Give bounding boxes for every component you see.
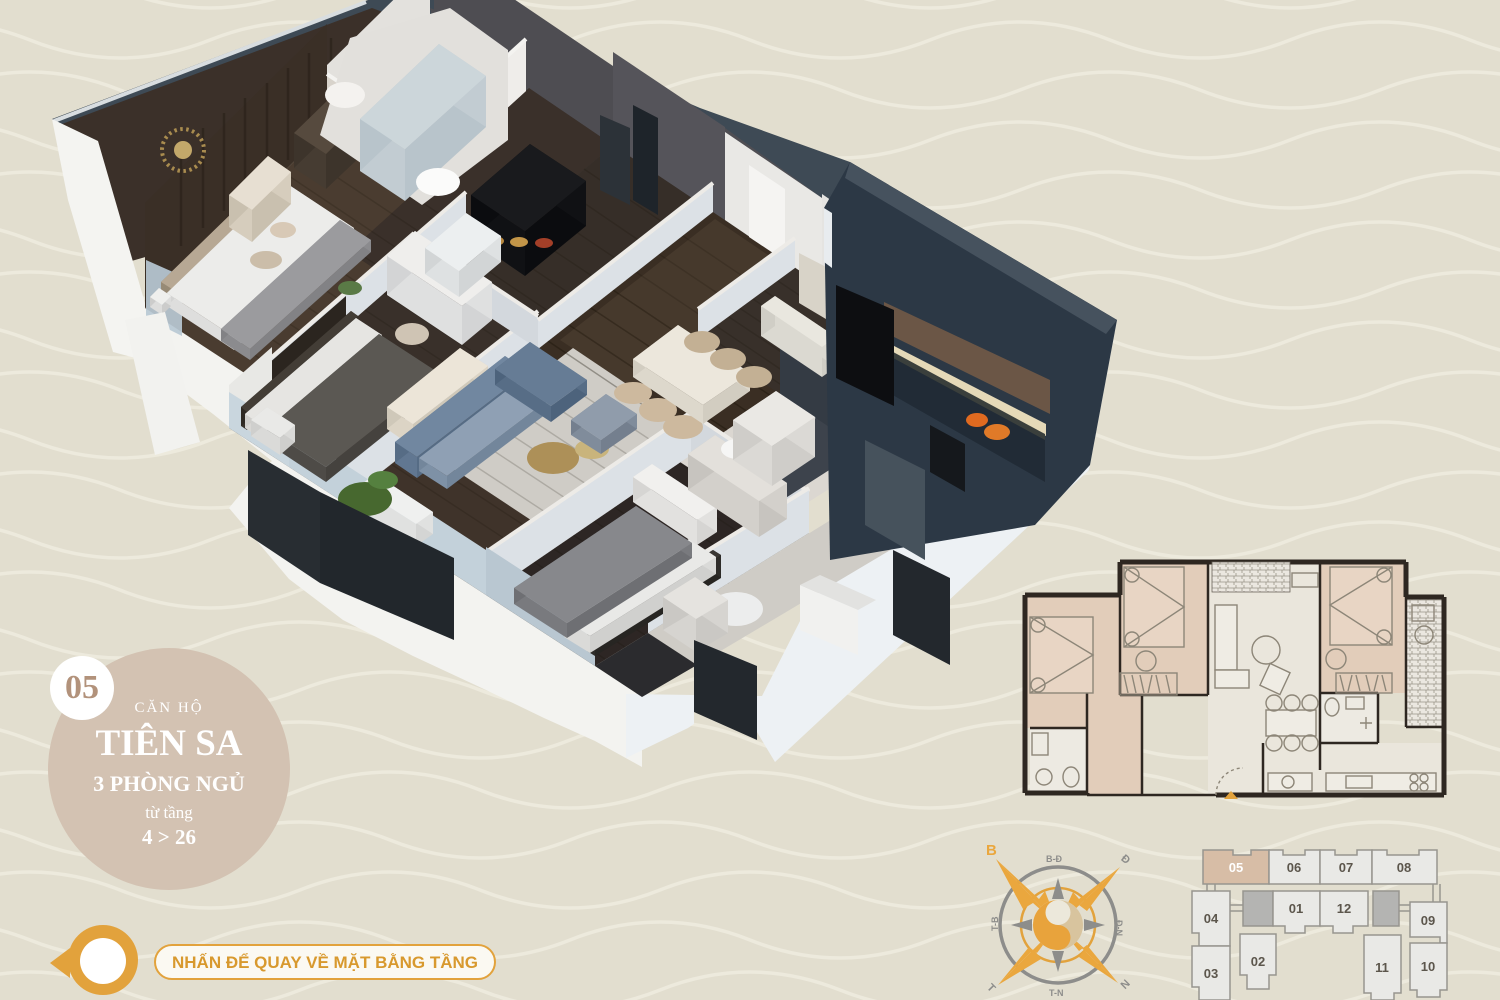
svg-text:N: N	[1119, 978, 1133, 992]
svg-text:B: B	[986, 842, 997, 859]
svg-text:09: 09	[1421, 913, 1435, 928]
svg-text:07: 07	[1339, 860, 1353, 875]
svg-text:Đ: Đ	[1118, 853, 1132, 867]
svg-text:03: 03	[1204, 966, 1218, 981]
svg-text:T-B: T-B	[990, 916, 1000, 931]
svg-text:T-N: T-N	[1049, 988, 1064, 998]
svg-text:08: 08	[1397, 860, 1411, 875]
svg-text:10: 10	[1421, 959, 1435, 974]
svg-text:02: 02	[1251, 954, 1265, 969]
svg-text:04: 04	[1204, 911, 1219, 926]
svg-text:12: 12	[1337, 901, 1351, 916]
svg-text:Đ-N: Đ-N	[1114, 920, 1124, 936]
svg-text:05: 05	[1229, 860, 1243, 875]
svg-text:11: 11	[1375, 960, 1389, 975]
svg-text:T: T	[984, 982, 997, 995]
svg-text:01: 01	[1289, 901, 1303, 916]
svg-text:B-Đ: B-Đ	[1046, 854, 1062, 864]
svg-text:06: 06	[1287, 860, 1301, 875]
